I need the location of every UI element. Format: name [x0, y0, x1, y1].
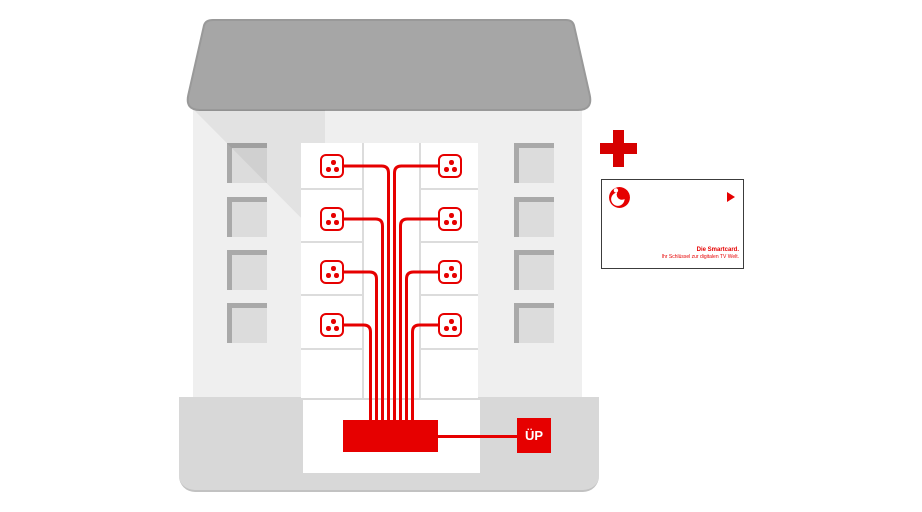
window	[514, 303, 554, 343]
window-pane	[232, 308, 267, 343]
panel-grid-line	[419, 188, 478, 190]
window	[227, 303, 267, 343]
window	[514, 143, 554, 183]
window-pane	[232, 202, 267, 237]
tv-socket-icon	[320, 313, 344, 337]
panel-grid-line	[301, 294, 362, 296]
tv-socket-icon	[438, 207, 462, 231]
window-pane	[232, 255, 267, 290]
window-pane	[519, 202, 554, 237]
panel-grid-line	[362, 143, 364, 398]
smartcard-subtitle: Ihr Schlüssel zur digitalen TV Welt.	[662, 254, 739, 261]
smartcard-caption: Die Smartcard. Ihr Schlüssel zur digital…	[662, 246, 739, 261]
tv-socket-icon	[438, 260, 462, 284]
smartcard-title: Die Smartcard.	[662, 246, 739, 254]
window	[514, 197, 554, 237]
tv-socket-icon	[438, 313, 462, 337]
panel-grid-line	[301, 348, 362, 350]
diagram-canvas: ÜP Die Smartcard. Ihr Schlüssel zur digi…	[0, 0, 922, 512]
handover-point-label: ÜP	[525, 428, 543, 443]
panel-grid-line	[419, 241, 478, 243]
tv-socket-icon	[320, 260, 344, 284]
window	[514, 250, 554, 290]
smartcard: Die Smartcard. Ihr Schlüssel zur digital…	[601, 179, 744, 269]
window	[227, 143, 267, 183]
panel-grid-line	[419, 143, 421, 398]
tv-socket-icon	[320, 207, 344, 231]
window-pane	[232, 148, 267, 183]
window-pane	[519, 148, 554, 183]
panel-grid-line	[301, 241, 362, 243]
window-pane	[519, 308, 554, 343]
plus-icon	[600, 143, 637, 154]
tv-socket-icon	[438, 154, 462, 178]
panel-grid-line	[419, 348, 478, 350]
tv-socket-icon	[320, 154, 344, 178]
handover-point-box: ÜP	[517, 418, 551, 453]
play-arrow-icon	[727, 192, 735, 202]
panel-grid-line	[301, 188, 362, 190]
window	[227, 250, 267, 290]
panel-grid-line	[419, 294, 478, 296]
window-pane	[519, 255, 554, 290]
vodafone-logo-icon	[608, 186, 631, 209]
window	[227, 197, 267, 237]
distribution-amplifier-box	[343, 420, 438, 452]
